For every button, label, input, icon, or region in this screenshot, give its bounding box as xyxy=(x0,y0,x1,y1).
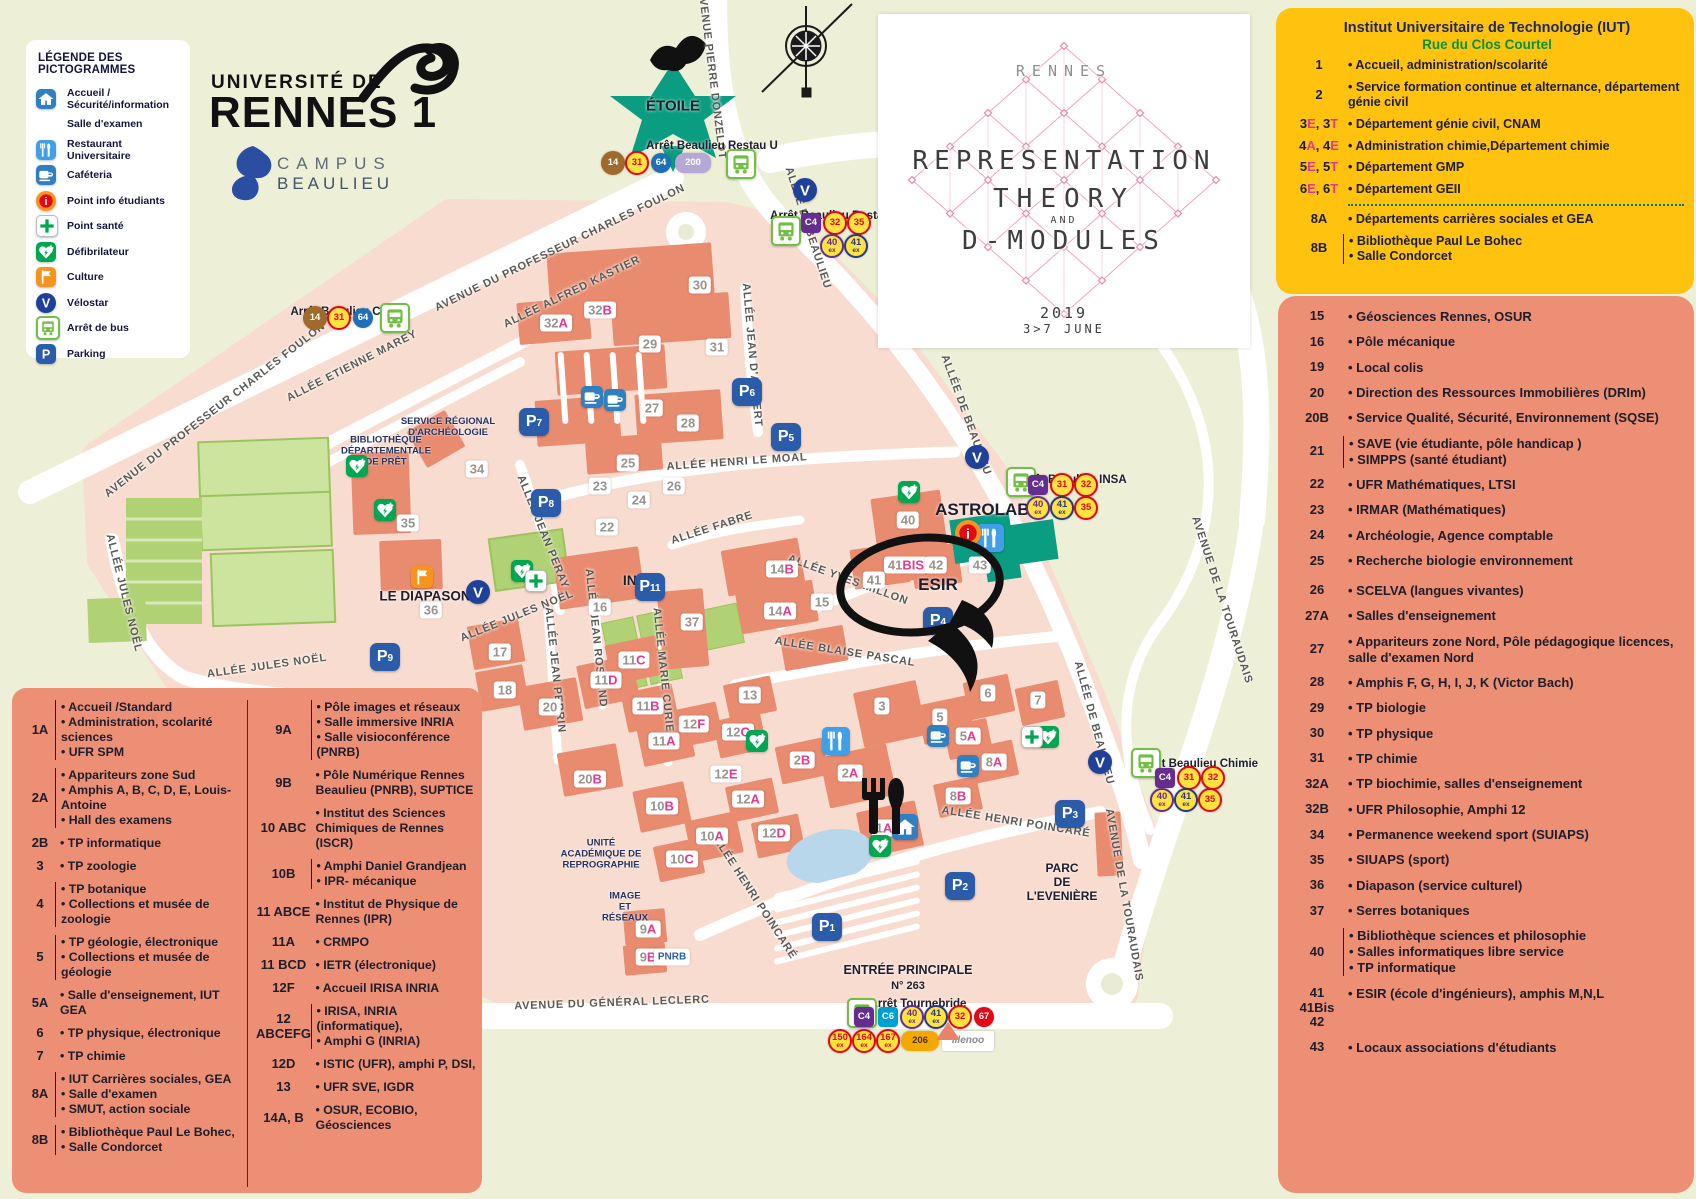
building-entry: 23IRMAR (Mathématiques) xyxy=(1286,502,1686,518)
poster-city: RENNES xyxy=(878,62,1250,80)
building-map-label: 10C xyxy=(666,851,698,868)
building-number: 28 xyxy=(1286,675,1348,690)
building-description-line: Pôle mécanique xyxy=(1348,334,1686,350)
bus-line-badge: 41ex xyxy=(1174,788,1198,812)
building-map-label: 12A xyxy=(732,791,764,808)
building-number: 12F xyxy=(252,981,316,996)
restaurant-icon xyxy=(36,140,60,160)
building-description-line: ISTIC (UFR), amphi P, DSI, xyxy=(316,1057,477,1072)
svg-text:P: P xyxy=(42,347,50,361)
building-descriptions: Recherche biologie environnement xyxy=(1348,553,1686,569)
building-number: 8B xyxy=(1290,241,1348,256)
building-number: 43 xyxy=(1286,1040,1348,1055)
building-entry: 20BService Qualité, Sécurité, Environnem… xyxy=(1286,410,1686,426)
building-description-line: Départements carrières sociales et GEA xyxy=(1348,212,1684,227)
building-descriptions: TP physique, électronique xyxy=(60,1026,245,1041)
building-descriptions: Administration chimie,Département chimie xyxy=(1348,139,1684,154)
building-description-line: Salle Condorcet xyxy=(61,1140,245,1155)
building-description-line: TP zoologie xyxy=(60,859,245,874)
poster-year: 2019 xyxy=(878,304,1250,322)
building-entry: 2Service formation continue et alternanc… xyxy=(1290,80,1684,111)
building-entry: 2AAppariteurs zone SudAmphis A, B, C, D,… xyxy=(20,768,245,828)
defib-icon xyxy=(898,481,920,503)
parking-badge: P2 xyxy=(945,872,975,900)
building-descriptions: Service Qualité, Sécurité, Environnement… xyxy=(1348,410,1686,426)
building-number: 7 xyxy=(20,1049,60,1064)
legend-item-label: Salle d'examen xyxy=(67,118,142,130)
building-map-label: 28 xyxy=(677,415,699,432)
building-descriptions: Départements carrières sociales et GEA xyxy=(1348,212,1684,227)
building-descriptions: Pôle Numérique Rennes Beaulieu (PNRB), S… xyxy=(316,768,477,798)
street-label: AVENUE PIERRE DONZELOT xyxy=(696,0,729,160)
building-description-line: Institut des Sciences Chimiques de Renne… xyxy=(316,806,477,851)
building-descriptions: Locaux associations d'étudiants xyxy=(1348,1040,1686,1056)
building-description-line: Salle visioconférence (PNRB) xyxy=(317,730,477,760)
building-descriptions: Bibliothèque Paul Le Bohec,Salle Condorc… xyxy=(55,1125,245,1155)
building-map-label: 17 xyxy=(489,644,511,661)
building-number: 9B xyxy=(252,776,316,791)
building-description-line: Salle d'enseignement, IUT GEA xyxy=(60,988,245,1018)
bus-line-badge: 31 xyxy=(1050,473,1074,497)
building-entry: 29TP biologie xyxy=(1286,700,1686,716)
parking-icon: P xyxy=(36,344,60,364)
building-descriptions: Permanence weekend sport (SUIAPS) xyxy=(1348,827,1686,843)
defib-icon xyxy=(746,730,768,752)
bus-line-badge: 64 xyxy=(353,308,373,328)
legend-item-label: Caféteria xyxy=(67,169,112,181)
poster-title-line2: THEORY xyxy=(878,184,1250,214)
building-description-line: IETR (électronique) xyxy=(316,958,477,973)
building-description-line: Collections et musée de zoologie xyxy=(61,897,245,927)
building-number: 23 xyxy=(1286,503,1348,518)
building-entry: 34Permanence weekend sport (SUIAPS) xyxy=(1286,827,1686,843)
building-number: 2A xyxy=(20,791,60,806)
building-entry: 35SIUAPS (sport) xyxy=(1286,852,1686,868)
building-description-line: IRISA, INRIA (informatique), xyxy=(317,1004,477,1034)
street-label: ALLÉE HENRI LE MOAL xyxy=(666,451,808,473)
building-entry: 12ABCEFGIRISA, INRIA (informatique),Amph… xyxy=(252,1004,477,1049)
street-label: AVENUE DU GÉNÉRAL LECLERC xyxy=(514,994,710,1013)
parking-badge: P3 xyxy=(1055,800,1085,828)
building-map-label: 20B xyxy=(574,771,606,788)
building-number: 2B xyxy=(20,836,60,851)
building-description-line: Amphis F, G, H, I, J, K (Victor Bach) xyxy=(1348,675,1686,691)
building-entry: 4A, 4EAdministration chimie,Département … xyxy=(1290,139,1684,154)
bus-icon xyxy=(36,316,60,340)
bus-line-badge: 32 xyxy=(1074,473,1098,497)
building-entry: 40Bibliothèque sciences et philosophieSa… xyxy=(1286,928,1686,976)
building-number: 24 xyxy=(1286,528,1348,543)
legend-item-label: Arrêt de bus xyxy=(67,322,129,334)
bus-line-badge: C4 xyxy=(1028,475,1048,495)
building-number: 31 xyxy=(1286,751,1348,766)
cafeteria-icon xyxy=(36,165,60,185)
building-entry: 16Pôle mécanique xyxy=(1286,334,1686,350)
building-number: 12ABCEFG xyxy=(252,1012,316,1042)
building-number: 21 xyxy=(1286,444,1348,459)
building-descriptions: UFR SVE, IGDR xyxy=(316,1080,477,1095)
building-description-line: Service Qualité, Sécurité, Environnement… xyxy=(1348,410,1686,426)
building-number: 30 xyxy=(1286,726,1348,741)
legend-item: Point santé xyxy=(36,214,182,240)
velostar-icon: V xyxy=(965,445,989,469)
building-number: 13 xyxy=(252,1080,316,1095)
bus-line-badge: illenoo xyxy=(942,1031,994,1051)
legend-item-label: Culture xyxy=(67,271,104,283)
building-descriptions: Institut de Physique de Rennes (IPR) xyxy=(316,897,477,927)
sante-icon xyxy=(36,215,60,237)
parking-badge: P11 xyxy=(635,573,665,601)
building-map-label: 11A xyxy=(648,733,679,750)
building-map-label: 15 xyxy=(811,594,833,611)
parking-badge: P5 xyxy=(771,423,801,451)
bus-line-badge: 32 xyxy=(1201,766,1225,790)
building-entry: 27ASalles d'enseignement xyxy=(1286,608,1686,624)
building-description-line: Accueil IRISA INRIA xyxy=(316,981,477,996)
building-map-label: 14A xyxy=(764,603,796,620)
legend-item-label: Accueil / Sécurité/information xyxy=(67,87,182,111)
building-description-line: Administration chimie,Département chimie xyxy=(1348,139,1684,154)
legend-item: Caféteria xyxy=(36,163,182,189)
building-description-line: Serres botaniques xyxy=(1348,903,1686,919)
building-entry: 32ATP biochimie, salles d'enseignement xyxy=(1286,776,1686,792)
building-descriptions: Amphi Daniel GrandjeanIPR- mécanique xyxy=(311,859,477,889)
building-entry: 12FAccueil IRISA INRIA xyxy=(252,981,477,996)
building-descriptions: TP biochimie, salles d'enseignement xyxy=(1348,776,1686,792)
building-descriptions: IRMAR (Mathématiques) xyxy=(1348,502,1686,518)
building-map-label: 10A xyxy=(696,828,728,845)
legend-item: iPoint info étudiants xyxy=(36,188,182,214)
building-description-line: CRMPO xyxy=(316,935,477,950)
svg-text:V: V xyxy=(473,585,483,602)
building-map-label: 16 xyxy=(589,599,611,616)
building-description-line: SIMPPS (santé étudiant) xyxy=(1349,452,1686,468)
culture-icon xyxy=(36,267,60,287)
building-number: 8B xyxy=(20,1133,60,1148)
legend-item-label: Point santé xyxy=(67,220,124,232)
building-number: 14A, B xyxy=(252,1111,316,1126)
building-map-label: 13 xyxy=(739,687,761,704)
parking-badge: P4 xyxy=(923,607,953,635)
building-descriptions: Institut des Sciences Chimiques de Renne… xyxy=(316,806,477,851)
building-map-label: 5 xyxy=(932,709,947,726)
building-descriptions: TP zoologie xyxy=(60,859,245,874)
building-number: 9A xyxy=(252,723,316,738)
building-descriptions: SCELVA (langues vivantes) xyxy=(1348,583,1686,599)
building-descriptions: Département GMP xyxy=(1348,160,1684,175)
building-descriptions: ISTIC (UFR), amphi P, DSI, xyxy=(316,1057,477,1072)
legend-item: Salle d'examen xyxy=(36,112,182,138)
bus-line-badge: 35 xyxy=(847,211,871,235)
building-map-label: PNRB xyxy=(654,949,690,966)
building-entry: 5TP géologie, électroniqueCollections et… xyxy=(20,935,245,980)
building-number: 5 xyxy=(20,950,60,965)
building-description-line: UFR SVE, IGDR xyxy=(316,1080,477,1095)
building-descriptions: UFR Philosophie, Amphi 12 xyxy=(1348,802,1686,818)
building-entry: 10 ABCInstitut des Sciences Chimiques de… xyxy=(252,806,477,851)
building-description-line: TP chimie xyxy=(1348,751,1686,767)
building-map-label: 11C xyxy=(618,652,649,669)
building-number: 40 xyxy=(1286,945,1348,960)
bus-line-badge: 200 xyxy=(675,153,711,173)
legend-item: Arrêt de bus xyxy=(36,316,182,342)
building-descriptions: Accueil IRISA INRIA xyxy=(316,981,477,996)
building-description-line: Salle Condorcet xyxy=(1349,249,1684,264)
building-map-label: 40 xyxy=(897,512,919,529)
building-map-label: 36 xyxy=(420,602,442,619)
building-descriptions: Pôle images et réseauxSalle immersive IN… xyxy=(311,700,477,760)
building-map-label: 8A xyxy=(982,754,1007,771)
building-number: 4 xyxy=(20,897,60,912)
building-entry: 28Amphis F, G, H, I, J, K (Victor Bach) xyxy=(1286,675,1686,691)
conference-poster: RENNES REPRESENTATION THEORY AND D-MODUL… xyxy=(878,14,1250,348)
building-number: 19 xyxy=(1286,360,1348,375)
building-descriptions: Pôle mécanique xyxy=(1348,334,1686,350)
building-description-line: TP géologie, électronique xyxy=(61,935,245,950)
bus-line-badge: 40ex xyxy=(820,234,844,258)
building-description-line: SCELVA (langues vivantes) xyxy=(1348,583,1686,599)
bus-line-badge: 67 xyxy=(974,1007,994,1027)
legend-panel: LÉGENDE DES PICTOGRAMMES Accueil / Sécur… xyxy=(26,40,190,358)
bus-line-badge: 64 xyxy=(651,153,671,173)
building-entry: 36Diapason (service culturel) xyxy=(1286,878,1686,894)
building-description-line: Pôle Numérique Rennes Beaulieu (PNRB), S… xyxy=(316,768,477,798)
buildings-panel-south: 1AAccueil /StandardAdministration, scola… xyxy=(12,688,482,1193)
building-entry: 8BBibliothèque Paul Le BohecSalle Condor… xyxy=(1290,234,1684,265)
building-entry: 7TP chimie xyxy=(20,1049,245,1064)
building-entry: 13UFR SVE, IGDR xyxy=(252,1080,477,1095)
building-number: 10B xyxy=(252,867,316,882)
building-description-line: TP chimie xyxy=(60,1049,245,1064)
building-number: 34 xyxy=(1286,828,1348,843)
defib-icon xyxy=(36,242,60,262)
bus-line-badge: 40ex xyxy=(1026,496,1050,520)
building-map-label: 12F xyxy=(679,716,709,733)
building-entry: 25Recherche biologie environnement xyxy=(1286,553,1686,569)
sante-icon xyxy=(525,570,547,592)
building-map-label: 10B xyxy=(646,798,678,815)
building-description-line: Local colis xyxy=(1348,360,1686,376)
parking-badge: P8 xyxy=(531,489,561,517)
building-entry: 6TP physique, électronique xyxy=(20,1026,245,1041)
building-map-label: 23 xyxy=(589,478,611,495)
service-label: UNITÉ ACADÉMIQUE DE REPROGRAPHIE xyxy=(561,839,642,872)
campus-beaulieu-logo-mark xyxy=(223,140,279,204)
building-description-line: Recherche biologie environnement xyxy=(1348,553,1686,569)
parking-badge: P6 xyxy=(732,378,762,406)
poster-title-and: AND xyxy=(878,215,1250,226)
bus-line-badge: 40ex xyxy=(1150,788,1174,812)
building-descriptions: Bibliothèque Paul Le BohecSalle Condorce… xyxy=(1343,234,1684,265)
buildings-col2: 9APôle images et réseauxSalle immersive … xyxy=(247,700,477,1187)
building-number: 26 xyxy=(1286,583,1348,598)
building-number: 15 xyxy=(1286,309,1348,324)
building-entry: 15Géosciences Rennes, OSUR xyxy=(1286,309,1686,325)
building-descriptions: Géosciences Rennes, OSUR xyxy=(1348,309,1686,325)
building-number: 32B xyxy=(1286,802,1348,817)
place-label: LE DIAPASON xyxy=(379,589,470,604)
building-descriptions: Serres botaniques xyxy=(1348,903,1686,919)
building-number: 36 xyxy=(1286,878,1348,893)
building-entry: 12DISTIC (UFR), amphi P, DSI, xyxy=(252,1057,477,1072)
legend-items: Accueil / Sécurité/informationSalle d'ex… xyxy=(36,86,182,367)
building-description-line: Bibliothèque sciences et philosophie xyxy=(1349,928,1686,944)
building-map-label: 3 xyxy=(874,698,889,715)
building-description-line: Salle immersive INRIA xyxy=(317,715,477,730)
legend-item: Accueil / Sécurité/information xyxy=(36,86,182,112)
building-descriptions: IRISA, INRIA (informatique),Amphi G (INR… xyxy=(311,1004,477,1049)
building-number: 22 xyxy=(1286,477,1348,492)
bus-line-badge: C6 xyxy=(878,1007,898,1027)
building-number: 25 xyxy=(1286,554,1348,569)
building-number: 11 ABCE xyxy=(252,905,316,920)
building-descriptions: SAVE (vie étudiante, pôle handicap )SIMP… xyxy=(1343,436,1686,468)
home-icon xyxy=(36,89,60,109)
building-map-label: 2A xyxy=(838,765,863,782)
street-label: ALLÉE HENRI POINCARÉ xyxy=(707,829,799,962)
building-number: 3 xyxy=(20,859,60,874)
building-number: 16 xyxy=(1286,335,1348,350)
building-descriptions: Amphis F, G, H, I, J, K (Victor Bach) xyxy=(1348,675,1686,691)
home-icon xyxy=(892,814,918,840)
defib-icon xyxy=(869,835,891,857)
building-number: 27 xyxy=(1286,642,1348,657)
building-description-line: Locaux associations d'étudiants xyxy=(1348,1040,1686,1056)
building-description-line: Salles informatiques libre service xyxy=(1349,944,1686,960)
bus-line-badge: 41ex xyxy=(1050,496,1074,520)
building-map-label: 37 xyxy=(681,614,703,631)
building-description-line: Accueil /Standard xyxy=(61,700,245,715)
svg-text:V: V xyxy=(800,183,810,200)
building-description-line: Diapason (service culturel) xyxy=(1348,878,1686,894)
building-description-line: Service formation continue et alternance… xyxy=(1348,80,1684,111)
street-label: ALLÉE BLAISE PASCAL xyxy=(774,635,916,669)
bus-line-badge: 32 xyxy=(823,211,847,235)
svg-text:V: V xyxy=(1095,755,1105,772)
legend-item: Restaurant Universitaire xyxy=(36,137,182,163)
building-description-line: Amphis A, B, C, D, E, Louis-Antoine xyxy=(61,783,245,813)
velostar-icon: V xyxy=(36,293,60,313)
building-description-line: Département GEII xyxy=(1348,182,1684,197)
building-number: 12D xyxy=(252,1057,316,1072)
street-label: ALLÉE FABRE xyxy=(670,509,755,547)
building-descriptions: Appariteurs zone Nord, Pôle pédagogique … xyxy=(1348,634,1686,666)
building-description-line: Collections et musée de géologie xyxy=(61,950,245,980)
buildings-entries-north: 15Géosciences Rennes, OSUR16Pôle mécaniq… xyxy=(1286,309,1686,1056)
building-description-line: SMUT, action sociale xyxy=(61,1102,245,1117)
place-label: ASTROLABE xyxy=(935,500,1041,520)
legend-item: PParking xyxy=(36,341,182,367)
place-label: ÉTOILE xyxy=(646,98,700,115)
buildings-panel-north: 15Géosciences Rennes, OSUR16Pôle mécaniq… xyxy=(1278,296,1694,1193)
building-entry: 11 ABCEInstitut de Physique de Rennes (I… xyxy=(252,897,477,927)
campus-line1: CAMPUS xyxy=(277,154,393,174)
building-map-label: 27 xyxy=(641,400,663,417)
bus-icon xyxy=(726,149,756,179)
building-map-label: 26 xyxy=(663,478,685,495)
street-label: ALLÉE JULES NOËL xyxy=(206,652,327,681)
building-description-line: Département génie civil, CNAM xyxy=(1348,117,1684,132)
building-entry: 1Accueil, administration/scolarité xyxy=(1290,58,1684,73)
building-entry: 30TP physique xyxy=(1286,726,1686,742)
campus-line2: BEAULIEU xyxy=(277,174,393,194)
bus-line-badge: 31 xyxy=(327,306,351,330)
building-descriptions: TP botaniqueCollections et musée de zool… xyxy=(55,882,245,927)
building-entry: 8BBibliothèque Paul Le Bohec,Salle Condo… xyxy=(20,1125,245,1155)
place-label: N° 263 xyxy=(891,980,925,992)
building-entry: 14A, BOSUR, ECOBIO, Géosciences xyxy=(252,1103,477,1133)
iut-panel: Institut Universitaire de Technologie (I… xyxy=(1276,8,1694,294)
building-entry: 3TP zoologie xyxy=(20,859,245,874)
building-description-line: SIUAPS (sport) xyxy=(1348,852,1686,868)
building-descriptions: IETR (électronique) xyxy=(316,958,477,973)
building-entry: 3E, 3TDépartement génie civil, CNAM xyxy=(1290,117,1684,132)
building-descriptions: Département GEII xyxy=(1348,182,1684,197)
building-number: 2 xyxy=(1290,88,1348,103)
building-map-label: 35 xyxy=(397,515,419,532)
building-description-line: IPR- mécanique xyxy=(317,874,477,889)
building-number: 32A xyxy=(1286,777,1348,792)
building-description-line: TP physique xyxy=(1348,726,1686,742)
info-icon: i xyxy=(36,191,60,211)
legend-item-label: Défibrilateur xyxy=(67,246,129,258)
building-entry: 4TP botaniqueCollections et musée de zoo… xyxy=(20,882,245,927)
building-descriptions: TP chimie xyxy=(1348,751,1686,767)
svg-text:i: i xyxy=(44,196,47,208)
bus-line-badge: 14 xyxy=(303,306,327,330)
building-description-line: Amphi Daniel Grandjean xyxy=(317,859,477,874)
service-label: IMAGE ET RÉSEAUX xyxy=(602,892,648,925)
building-number: 20B xyxy=(1286,411,1348,426)
building-map-label: 20 xyxy=(539,699,561,716)
bus-line-badge: C4 xyxy=(1155,768,1175,788)
building-description-line: Bibliothèque Paul Le Bohec xyxy=(1349,234,1684,249)
building-map-label: 12E xyxy=(710,766,741,783)
legend-item-label: Restaurant Universitaire xyxy=(67,138,182,162)
building-descriptions: TP géologie, électroniqueCollections et … xyxy=(55,935,245,980)
building-map-label: 41 xyxy=(863,572,885,589)
building-map-label: 24 xyxy=(628,492,650,509)
building-description-line: Département GMP xyxy=(1348,160,1684,175)
building-description-line: ESIR (école d'ingénieurs), amphis M,N,L xyxy=(1348,986,1686,1002)
culture-icon xyxy=(411,566,433,588)
building-number: 37 xyxy=(1286,904,1348,919)
building-number: 10 ABC xyxy=(252,821,316,836)
building-number: 4141Bis42 xyxy=(1286,986,1348,1031)
building-descriptions: Accueil, administration/scolarité xyxy=(1348,58,1684,73)
building-description-line: Hall des examens xyxy=(61,813,245,828)
poster-title-line1: REPRESENTATION xyxy=(878,146,1250,176)
building-number: 29 xyxy=(1286,701,1348,716)
building-entry: 11 BCDIETR (électronique) xyxy=(252,958,477,973)
building-number: 4A, 4E xyxy=(1290,139,1348,154)
bus-line-badge: 164ex xyxy=(852,1029,876,1053)
building-map-label: 22 xyxy=(596,519,618,536)
building-number: 1A xyxy=(20,723,60,738)
building-entry: 43Locaux associations d'étudiants xyxy=(1286,1040,1686,1056)
poster-title-line3: D-MODULES xyxy=(878,226,1250,256)
bus-line-badge: 41ex xyxy=(924,1005,948,1029)
iut-panel-title: Institut Universitaire de Technologie (I… xyxy=(1290,20,1684,36)
building-descriptions: Bibliothèque sciences et philosophieSall… xyxy=(1343,928,1686,976)
bus-line-badge: 150ex xyxy=(828,1029,852,1053)
building-description-line: OSUR, ECOBIO, Géosciences xyxy=(316,1103,477,1133)
info-icon: i xyxy=(955,520,981,546)
building-descriptions: Salle d'enseignement, IUT GEA xyxy=(60,988,245,1018)
building-number: 11A xyxy=(252,935,316,950)
velostar-icon: V xyxy=(466,580,490,604)
building-description-line: UFR SPM xyxy=(61,745,245,760)
